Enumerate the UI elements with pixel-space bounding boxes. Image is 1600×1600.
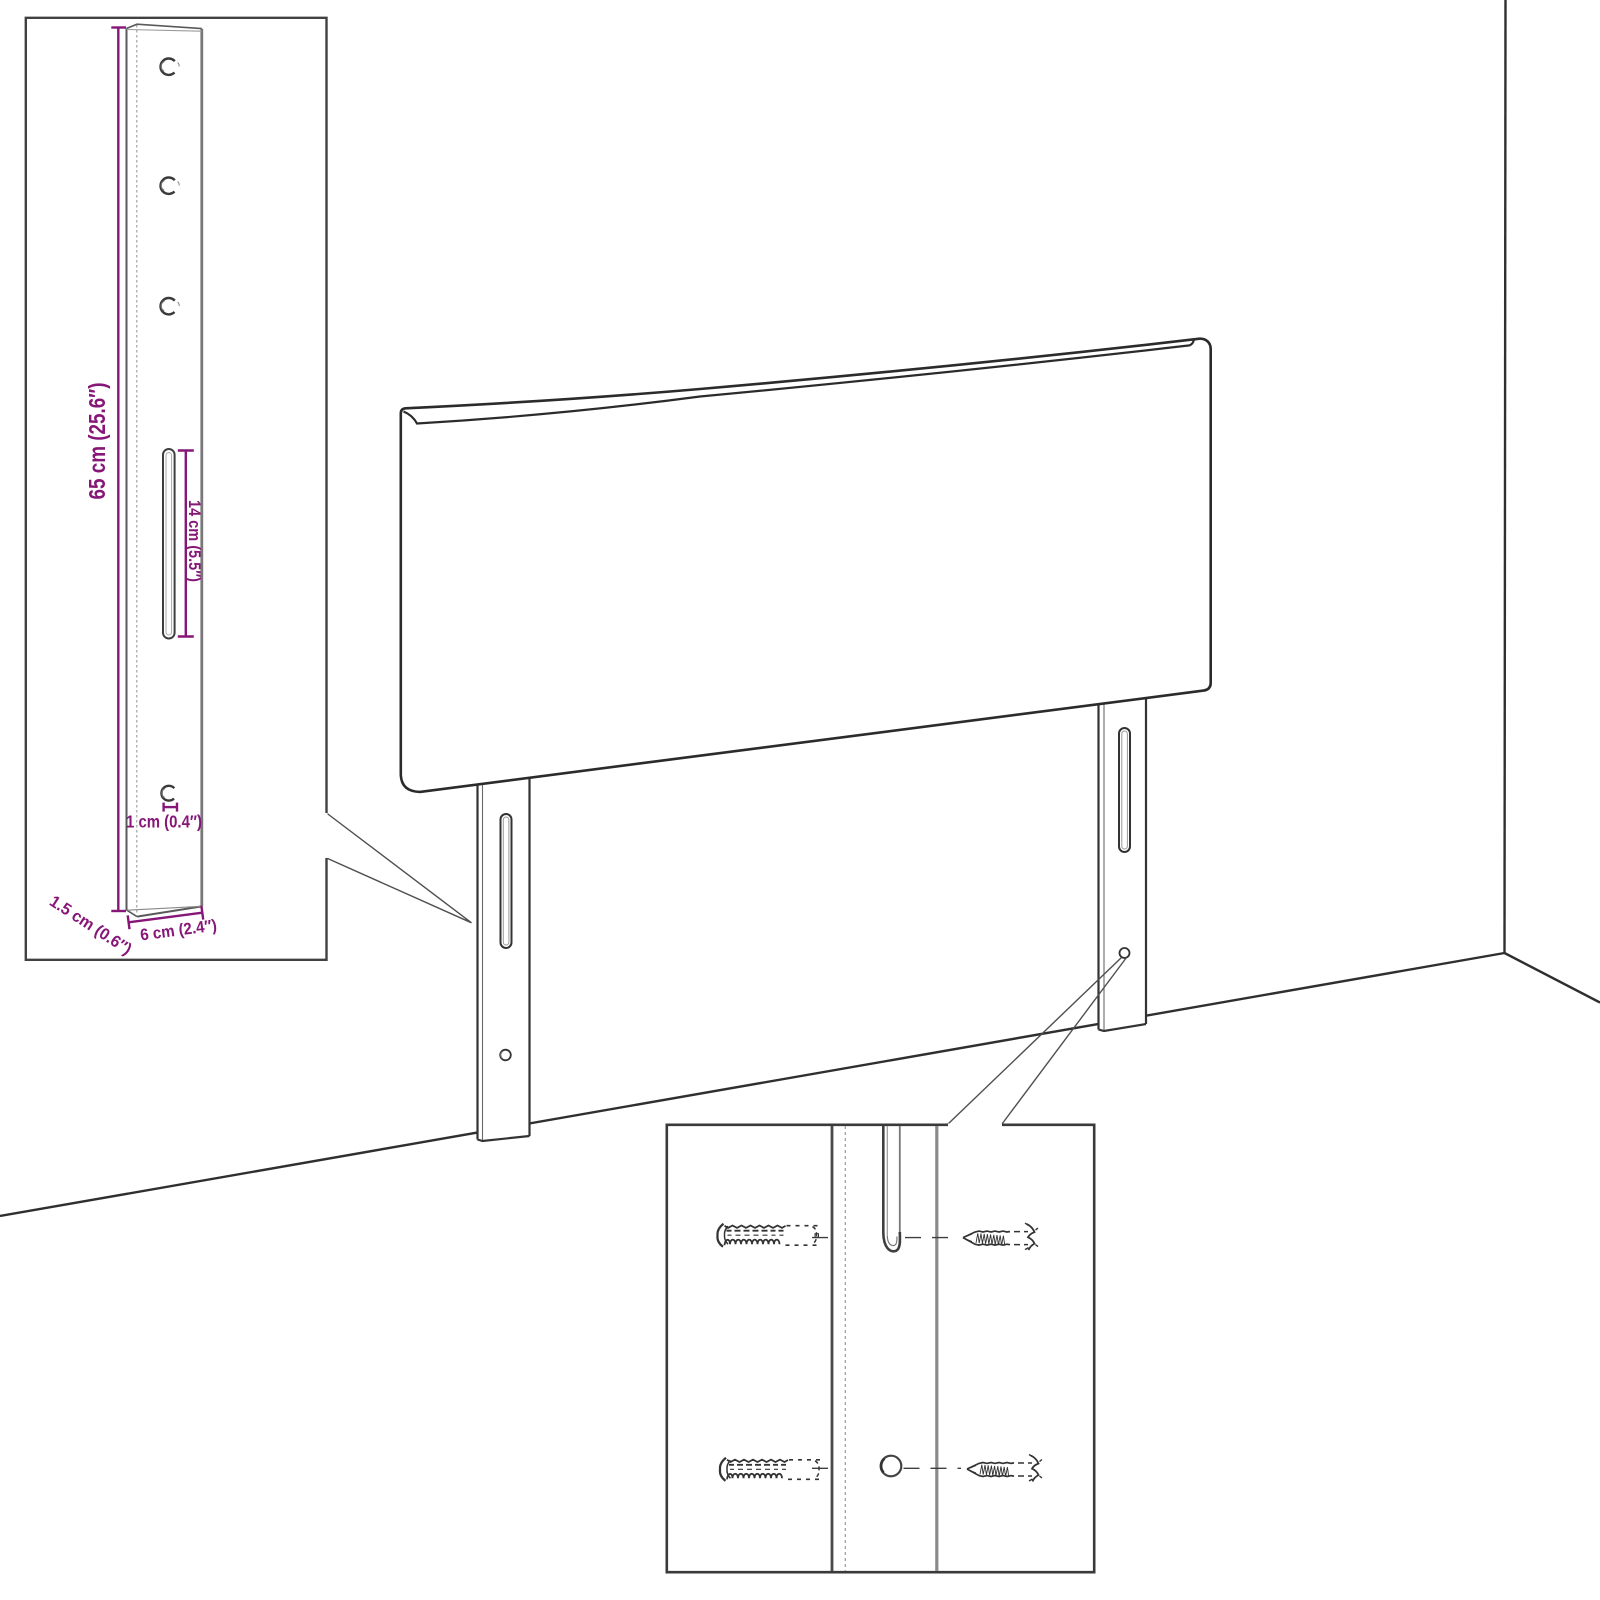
svg-text:65 cm (25.6″): 65 cm (25.6″) (84, 383, 110, 500)
svg-text:14 cm (5.5″): 14 cm (5.5″) (185, 500, 203, 582)
svg-text:1 cm (0.4″): 1 cm (0.4″) (126, 812, 202, 832)
